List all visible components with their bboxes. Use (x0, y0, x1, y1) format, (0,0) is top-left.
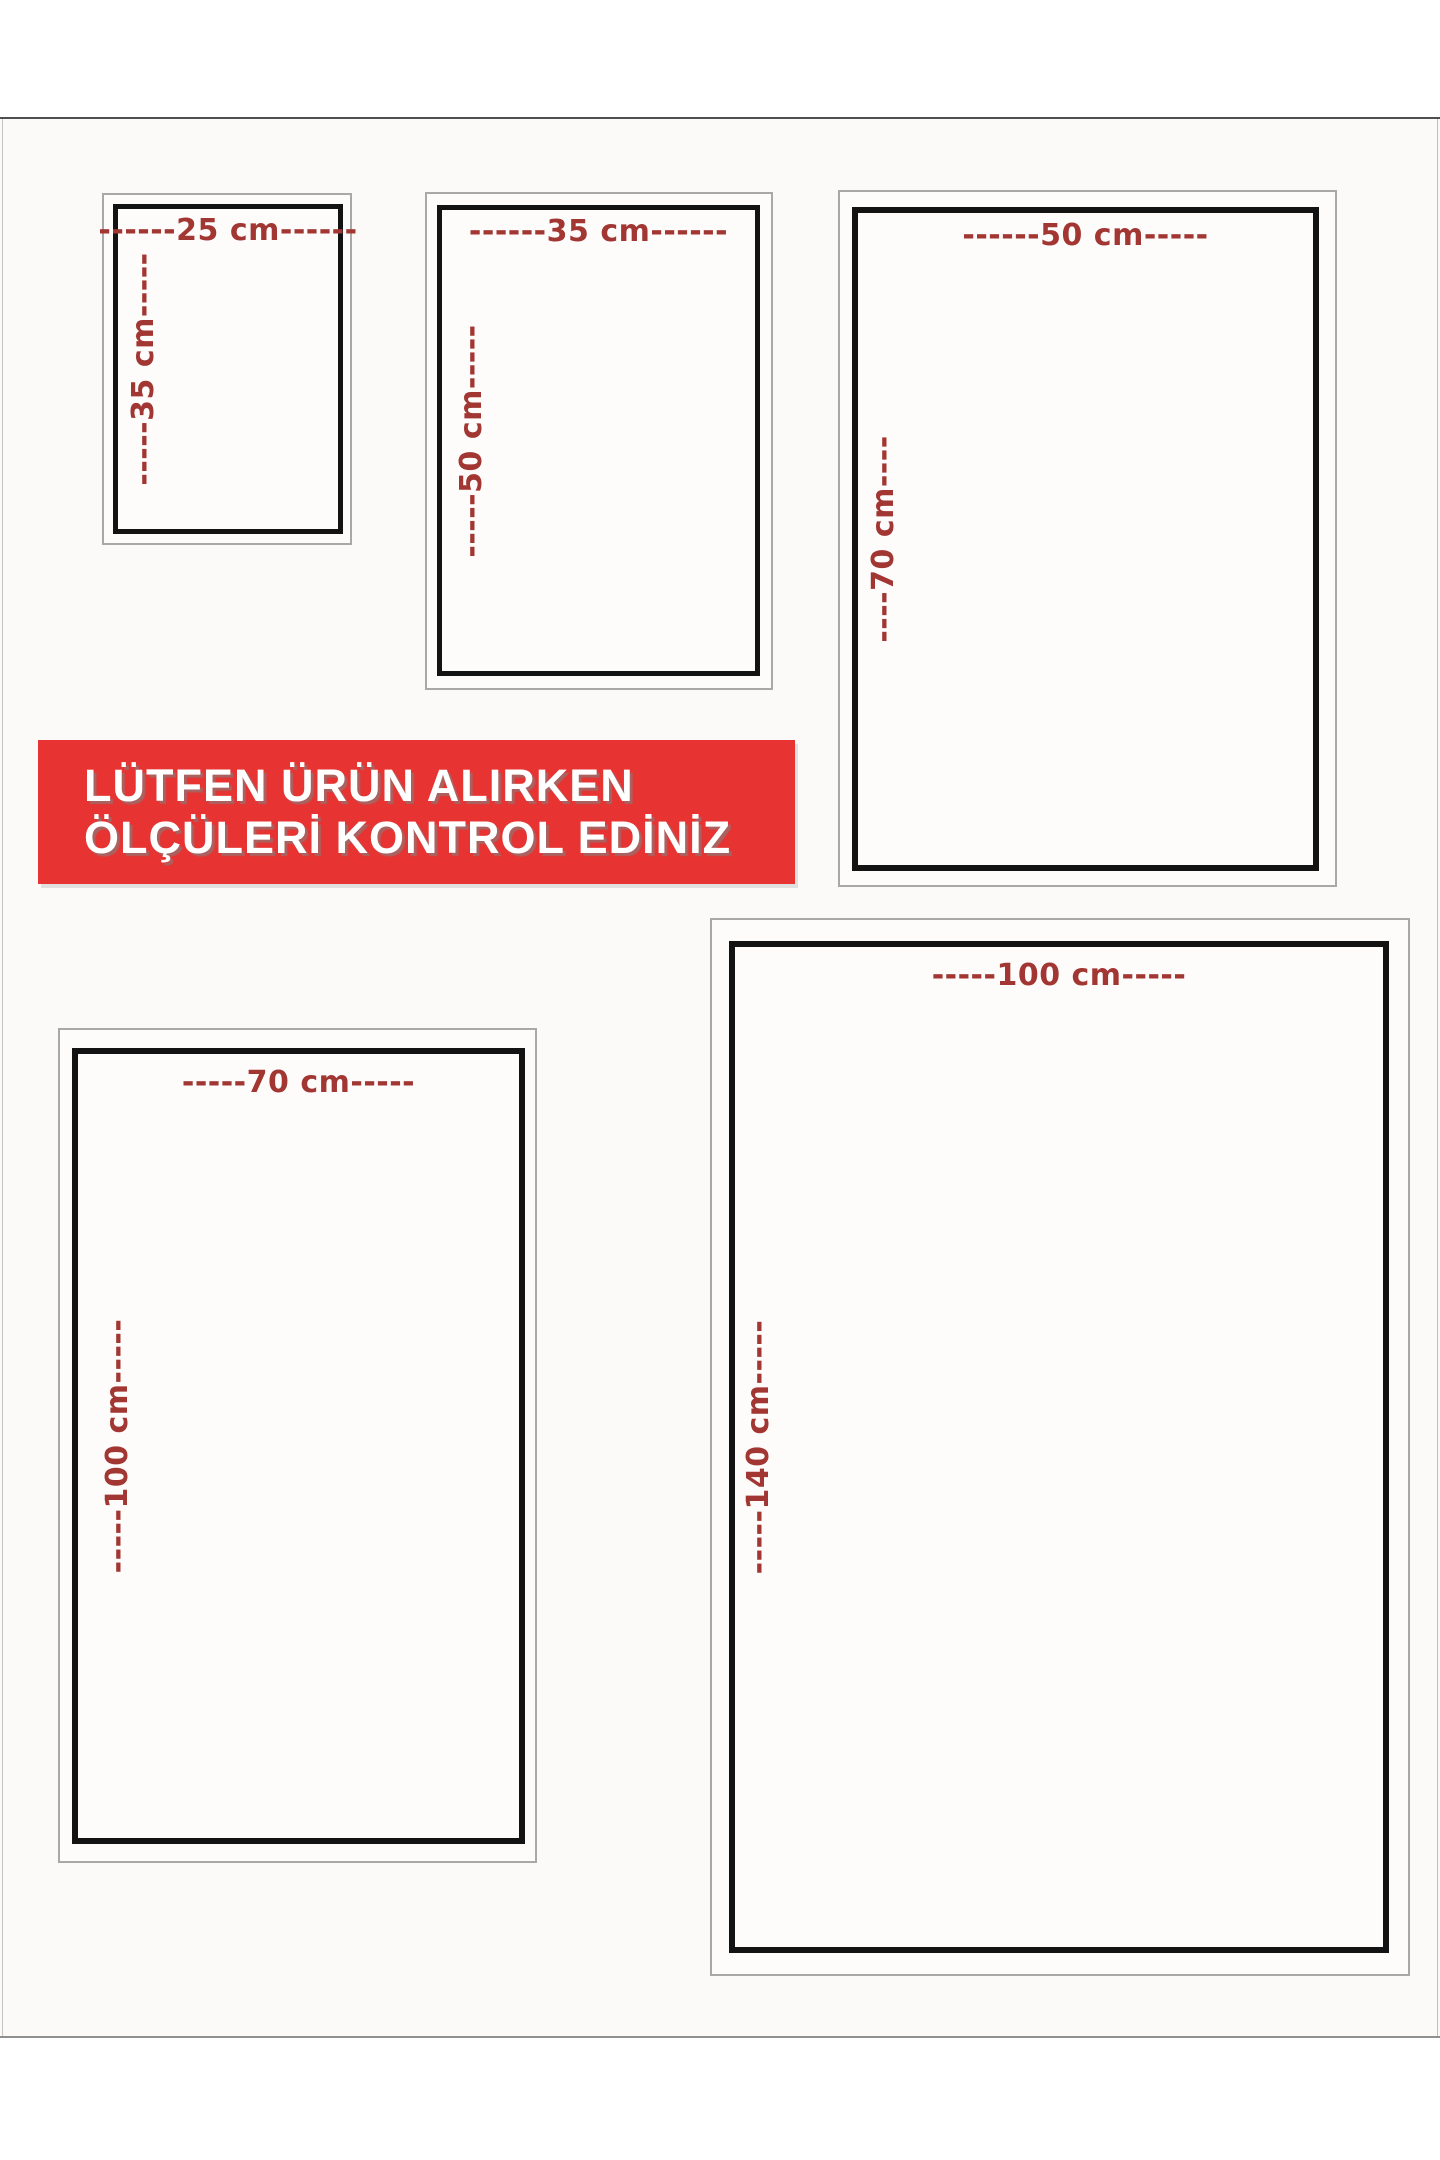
canvas-right-edge (1437, 119, 1438, 2036)
height-dimension-label: -----35 cm----- (129, 252, 159, 485)
width-dimension-label: ------50 cm----- (962, 221, 1208, 251)
width-dimension-label: -----100 cm----- (932, 961, 1187, 991)
height-dimension-label: -----50 cm----- (457, 324, 487, 557)
canvas-left-edge (2, 119, 3, 2036)
size-box-50x70-frame: ------50 cm----- ----70 cm---- (852, 207, 1319, 871)
size-box-70x100: -----70 cm----- -----100 cm----- (58, 1028, 537, 1863)
width-dimension-label: -----70 cm----- (182, 1068, 415, 1098)
notice-banner-line2: ÖLÇÜLERİ KONTROL EDİNİZ (84, 812, 731, 864)
notice-banner-line1: LÜTFEN ÜRÜN ALIRKEN (84, 760, 731, 812)
height-dimension-label: ----70 cm---- (869, 435, 899, 642)
size-box-35x50: ------35 cm------ -----50 cm----- (425, 192, 773, 690)
size-box-50x70: ------50 cm----- ----70 cm---- (838, 190, 1337, 887)
size-box-35x50-frame: ------35 cm------ -----50 cm----- (437, 205, 760, 676)
height-dimension-label: -----140 cm----- (744, 1320, 774, 1575)
size-chart-page: ------25 cm------ -----35 cm----- ------… (0, 0, 1440, 2160)
width-dimension-label: ------25 cm------ (98, 216, 357, 246)
size-box-100x140-frame: -----100 cm----- -----140 cm----- (729, 941, 1389, 1953)
width-dimension-label: ------35 cm------ (469, 217, 728, 247)
notice-banner: LÜTFEN ÜRÜN ALIRKEN ÖLÇÜLERİ KONTROL EDİ… (38, 740, 795, 884)
size-box-70x100-frame: -----70 cm----- -----100 cm----- (72, 1048, 525, 1844)
size-box-25x35-frame: ------25 cm------ -----35 cm----- (113, 204, 343, 534)
height-dimension-label: -----100 cm----- (103, 1319, 133, 1574)
canvas-top-edge (0, 117, 1440, 119)
canvas-bottom-edge (0, 2036, 1440, 2038)
size-box-25x35: ------25 cm------ -----35 cm----- (102, 193, 352, 545)
size-box-100x140: -----100 cm----- -----140 cm----- (710, 918, 1410, 1976)
notice-banner-text: LÜTFEN ÜRÜN ALIRKEN ÖLÇÜLERİ KONTROL EDİ… (84, 760, 731, 864)
